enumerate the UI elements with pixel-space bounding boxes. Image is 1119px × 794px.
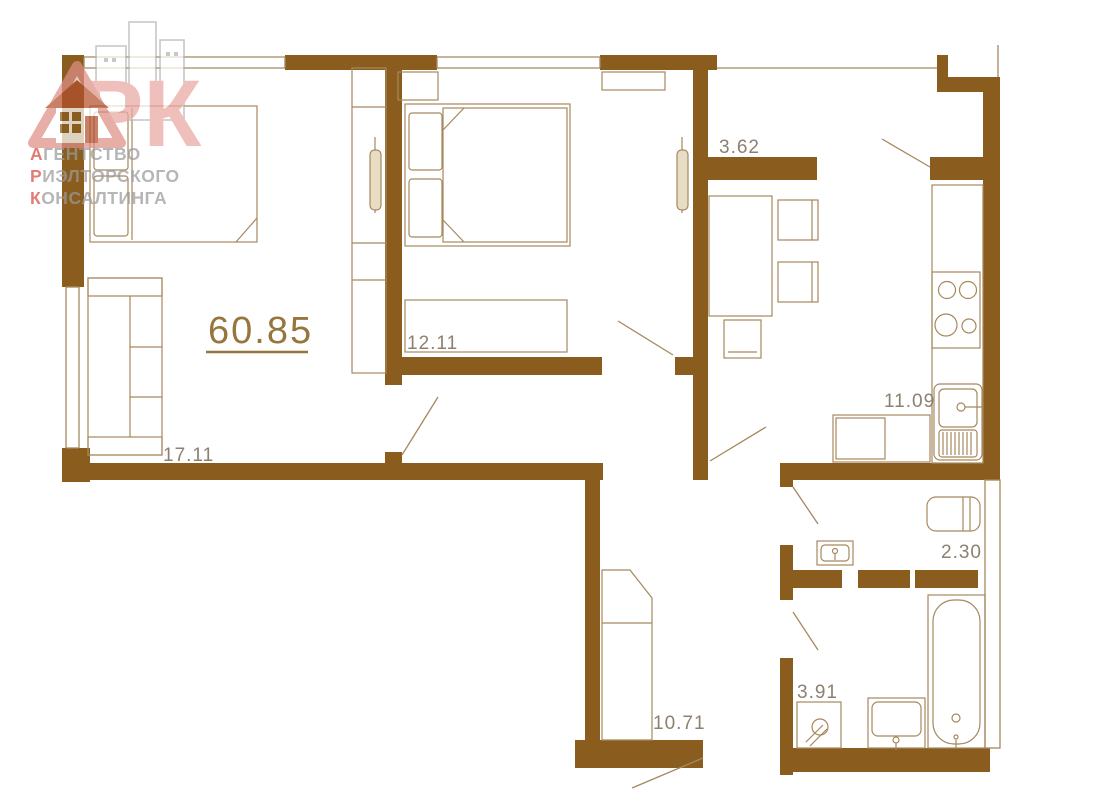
fridge-cabinet xyxy=(833,415,930,462)
door-corridor-kitchen xyxy=(710,427,766,461)
shelf-bedroom-right xyxy=(602,72,665,90)
wall-segment xyxy=(780,545,793,600)
stove xyxy=(932,272,980,348)
cabinet-bedroom-left xyxy=(398,72,438,100)
area-labels: 60.85 17.11 12.11 3.62 11.09 2.30 3.91 1… xyxy=(163,137,982,734)
wall-segment xyxy=(983,92,1000,480)
door-bathroom xyxy=(793,612,818,650)
wall-segment xyxy=(930,157,983,180)
washbasin-wc xyxy=(817,541,853,565)
wall-segment xyxy=(385,55,402,385)
wall-segment xyxy=(585,480,600,755)
wall-segment xyxy=(600,55,717,70)
wall-segment xyxy=(780,748,990,772)
washing-machine xyxy=(927,497,980,531)
kitchen-sink xyxy=(934,384,983,460)
sofa xyxy=(88,278,162,455)
door-living-room xyxy=(402,397,438,455)
corridor-wardrobe xyxy=(602,570,652,740)
furniture xyxy=(88,68,985,750)
wall-segment xyxy=(675,357,693,375)
wardrobe-living xyxy=(352,68,386,373)
room-area-label-wc: 2.30 xyxy=(941,542,982,563)
wall-segment xyxy=(915,570,978,588)
logo-line-2: РИЭЛТОРСКОГО xyxy=(30,166,180,186)
door-hallway-kitchen xyxy=(882,139,930,167)
chair xyxy=(778,200,818,240)
duct-shaft xyxy=(985,480,1000,748)
total-area-label: 60.85 xyxy=(208,310,313,352)
wall-segment xyxy=(780,480,793,487)
windows xyxy=(66,45,1000,748)
window-bedroom-top xyxy=(437,57,600,68)
dining-table xyxy=(709,196,772,316)
wall-segment xyxy=(575,740,703,768)
toilet xyxy=(797,702,841,748)
wall-segment xyxy=(400,357,602,375)
room-area-label-bedroom: 12.11 xyxy=(407,333,458,354)
window-living-left xyxy=(66,287,79,448)
agency-logo: РК АГЕНТСТВО РИЭЛТОРСКОГО КОНСАЛТИНГА xyxy=(30,22,202,208)
stool xyxy=(724,320,761,358)
room-area-label-corridor: 10.71 xyxy=(653,713,706,734)
washbasin-bathroom xyxy=(868,698,925,750)
wall-segment xyxy=(693,55,708,480)
radiator-bedroom xyxy=(677,137,688,213)
logo-line-3: КОНСАЛТИНГА xyxy=(30,188,167,208)
room-area-label-bathroom: 3.91 xyxy=(797,682,838,703)
door-wc xyxy=(793,487,818,524)
wall-segment xyxy=(708,157,817,180)
room-area-label-kitchen: 11.09 xyxy=(884,391,935,412)
radiator-living xyxy=(370,137,381,213)
wall-segment xyxy=(947,77,1000,92)
wall-segment xyxy=(780,463,1000,480)
floor-plan: 60.85 17.11 12.11 3.62 11.09 2.30 3.91 1… xyxy=(0,0,1119,794)
logo-line-1: АГЕНТСТВО xyxy=(30,144,141,164)
room-area-label-hallway: 3.62 xyxy=(719,137,760,158)
wall-segment xyxy=(793,570,842,588)
chair xyxy=(778,262,818,302)
bathtub xyxy=(928,595,985,749)
door-bedroom xyxy=(618,321,673,355)
wall-segment xyxy=(937,55,948,92)
room-area-label-living: 17.11 xyxy=(163,445,214,466)
wall-segment xyxy=(62,463,603,480)
wall-segment xyxy=(858,570,910,588)
floor-plan-page: 60.85 17.11 12.11 3.62 11.09 2.30 3.91 1… xyxy=(0,0,1119,794)
bed-bedroom xyxy=(405,104,570,246)
